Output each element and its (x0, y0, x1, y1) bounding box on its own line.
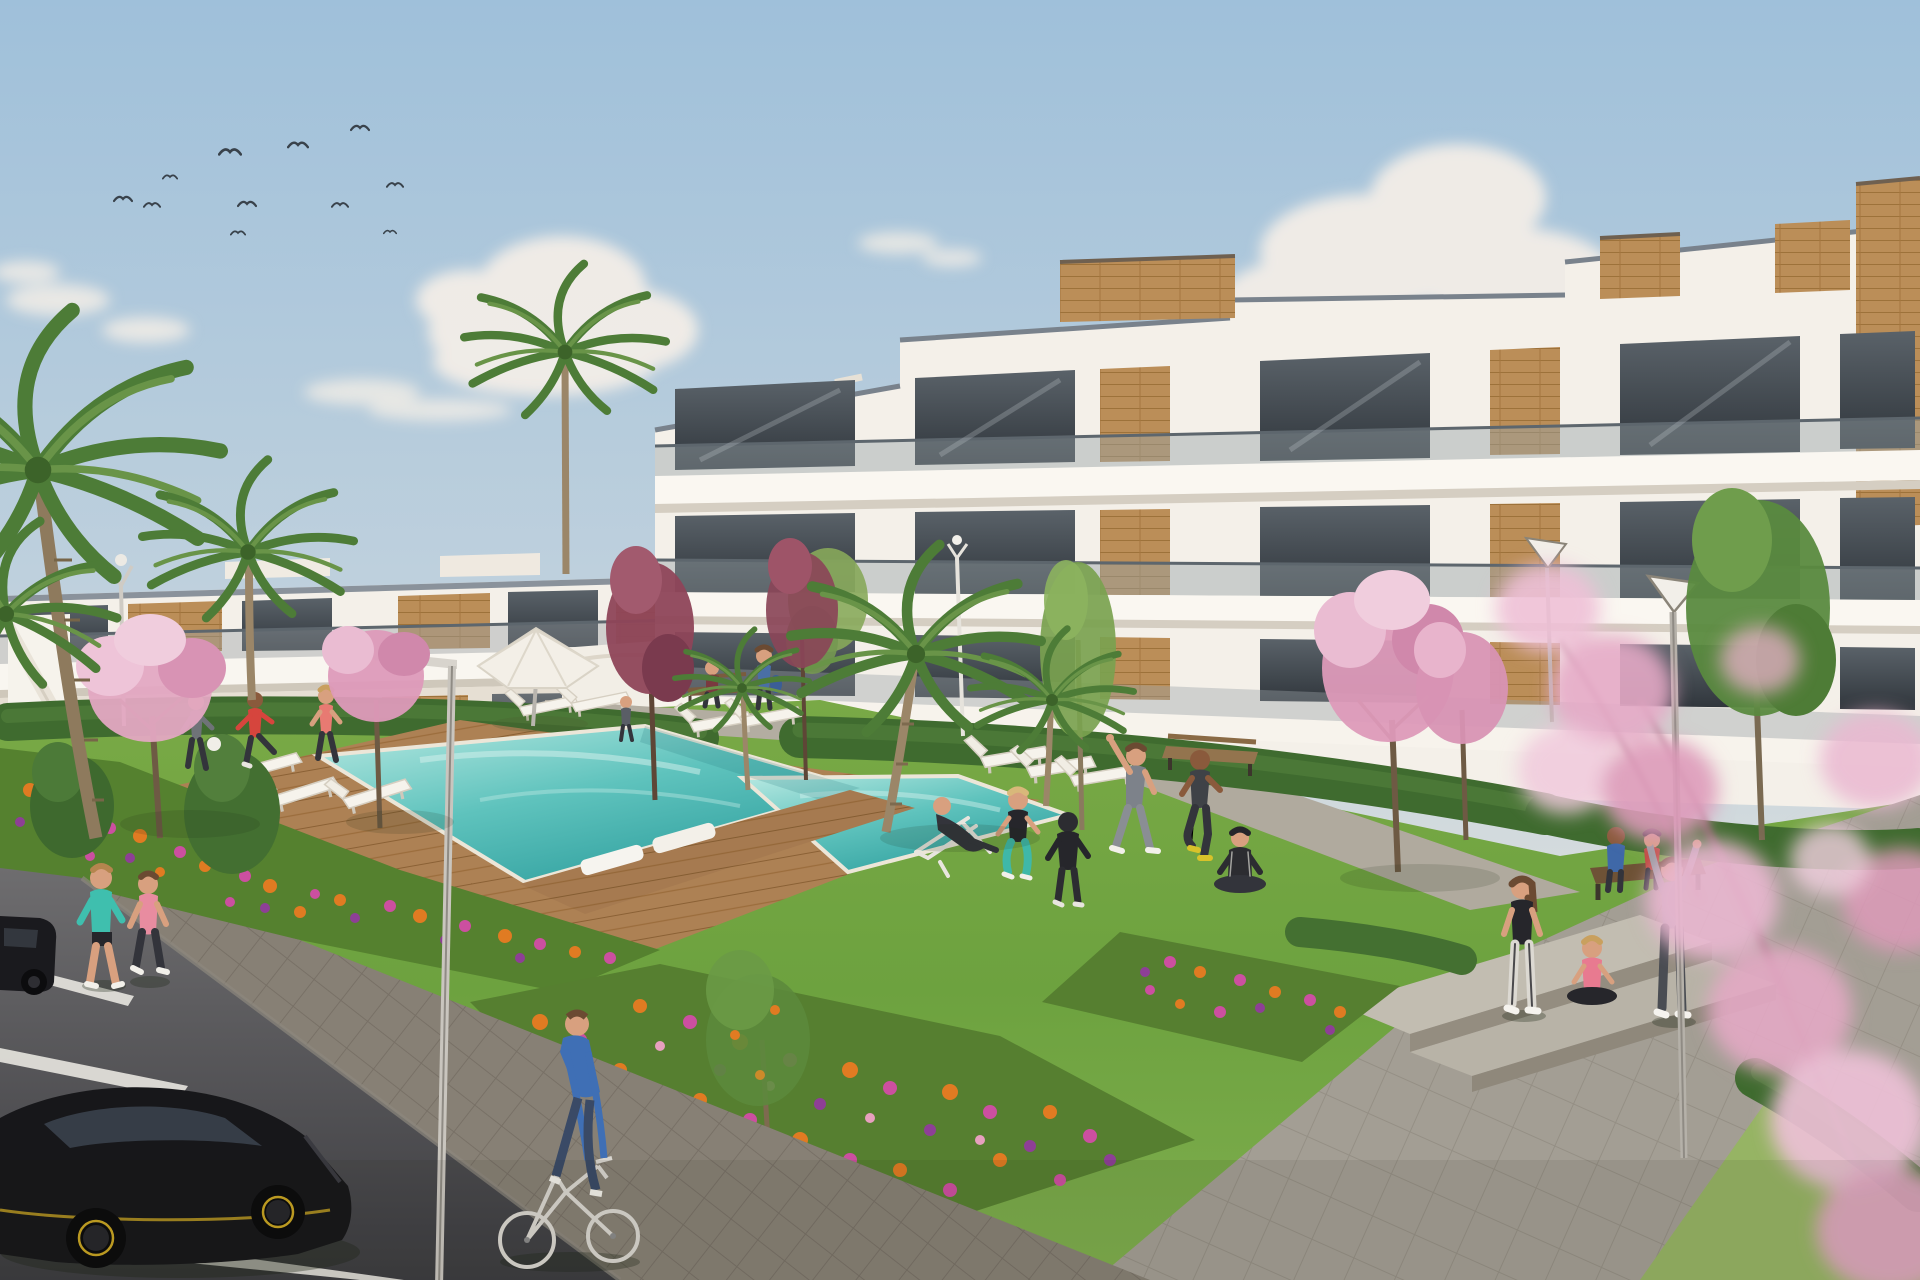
roof-timber-box-2 (1600, 234, 1680, 299)
football (207, 737, 221, 751)
vignette (0, 1160, 1920, 1280)
roof-timber-box-3 (1775, 220, 1850, 293)
roof-timber-box-1 (1060, 256, 1235, 322)
architectural-render-scene (0, 0, 1920, 1280)
car-far (0, 916, 56, 995)
